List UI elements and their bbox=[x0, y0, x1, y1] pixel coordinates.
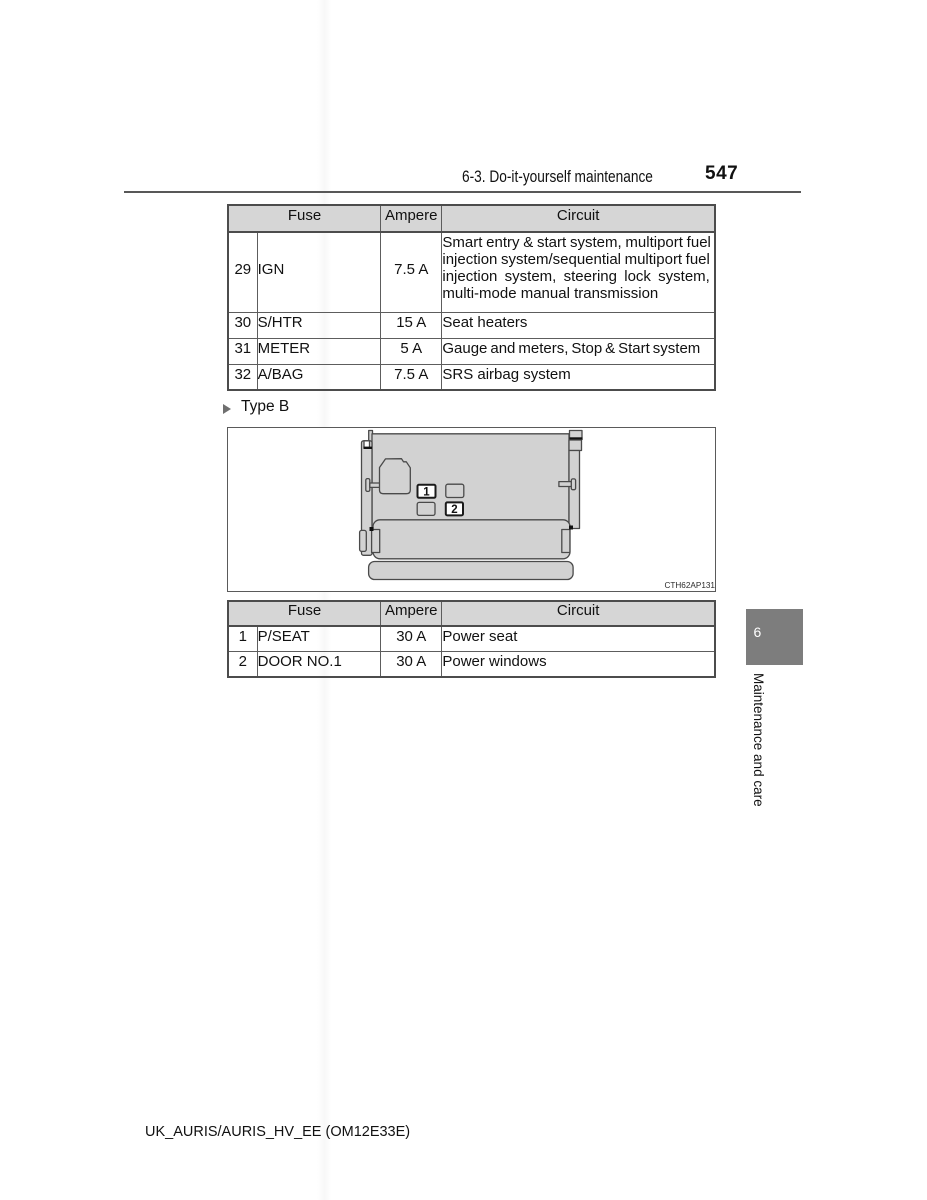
svg-text:1: 1 bbox=[423, 487, 430, 499]
svg-text:2: 2 bbox=[451, 504, 457, 516]
